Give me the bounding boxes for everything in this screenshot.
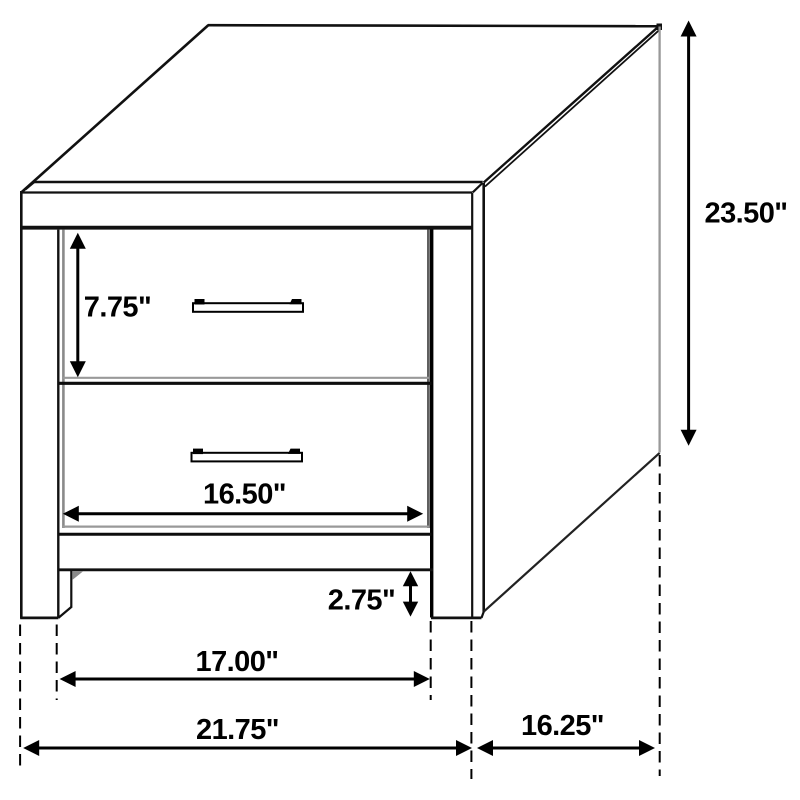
svg-text:16.25": 16.25" — [521, 710, 604, 742]
svg-text:17.00": 17.00" — [195, 646, 278, 678]
svg-text:23.50": 23.50" — [704, 198, 787, 230]
svg-text:2.75": 2.75" — [328, 585, 395, 617]
svg-text:21.75": 21.75" — [196, 714, 279, 746]
svg-text:7.75": 7.75" — [84, 292, 151, 324]
svg-text:16.50": 16.50" — [203, 479, 286, 511]
